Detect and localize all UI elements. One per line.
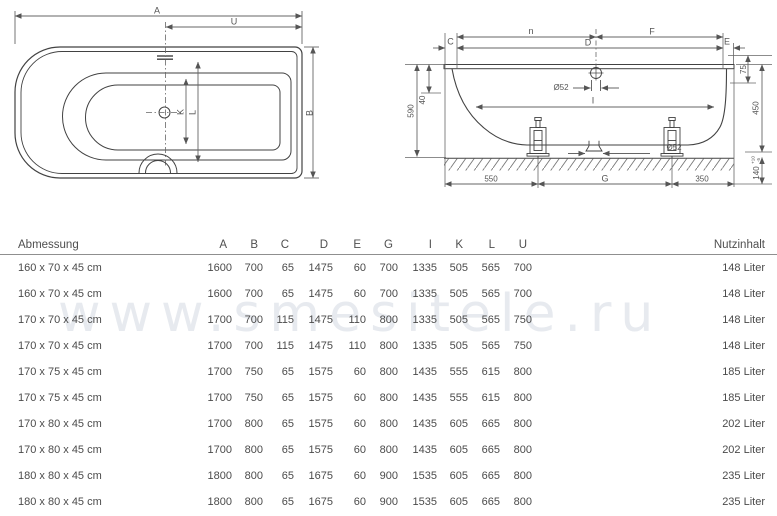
value-cell: 1335: [398, 314, 437, 326]
value-cell: 700: [232, 288, 263, 300]
drain-diameter-label: Ø52: [666, 143, 682, 152]
value-cell: 800: [232, 470, 263, 482]
tub-foot-right: [661, 118, 683, 159]
value-cell: 65: [263, 366, 294, 378]
overflow-detail: [589, 66, 604, 92]
value-cell: 800: [232, 496, 263, 508]
table-body: 160 x 70 x 45 cm160070065147560700133550…: [0, 255, 777, 515]
value-cell: 1700: [198, 366, 232, 378]
value-cell: 1575: [294, 392, 333, 404]
value-cell: 605: [437, 418, 468, 430]
dim-590-label: 590: [407, 104, 416, 118]
value-cell: 605: [437, 470, 468, 482]
value-cell: 60: [333, 496, 366, 508]
value-cell: 665: [468, 496, 500, 508]
value-cell: 750: [500, 314, 532, 326]
size-cell: 180 x 80 x 45 cm: [0, 470, 198, 482]
header-col-g: G: [366, 239, 398, 251]
value-cell: 60: [333, 366, 366, 378]
value-cell: 1700: [198, 444, 232, 456]
value-cell: 750: [500, 340, 532, 352]
value-cell: 115: [263, 314, 294, 326]
value-cell: 65: [263, 470, 294, 482]
value-cell: 665: [468, 444, 500, 456]
value-cell: 700: [366, 262, 398, 274]
dim-label-k: K: [176, 109, 186, 115]
volume-cell: 148 Liter: [635, 262, 777, 274]
value-cell: 1335: [398, 340, 437, 352]
value-cell: 115: [263, 340, 294, 352]
value-cell: 800: [366, 392, 398, 404]
value-cell: 1575: [294, 444, 333, 456]
value-cell: 800: [366, 418, 398, 430]
value-cell: 700: [232, 314, 263, 326]
value-cell: 900: [366, 496, 398, 508]
value-cell: 800: [500, 418, 532, 430]
dim-label-i: I: [592, 96, 595, 106]
value-cell: 505: [437, 288, 468, 300]
value-cell: 65: [263, 444, 294, 456]
value-cell: 60: [333, 444, 366, 456]
centerlines: [146, 22, 184, 168]
value-cell: 65: [263, 262, 294, 274]
volume-cell: 202 Liter: [635, 418, 777, 430]
size-cell: 170 x 80 x 45 cm: [0, 418, 198, 430]
tub-foot-left: [527, 118, 549, 159]
volume-cell: 185 Liter: [635, 366, 777, 378]
value-cell: 60: [333, 392, 366, 404]
value-cell: 60: [333, 288, 366, 300]
value-cell: 900: [366, 470, 398, 482]
side-view-drawing: n F C D E I Ø52 Ø52 550 G 350 590 40 75 …: [405, 26, 772, 188]
value-cell: 1435: [398, 418, 437, 430]
value-cell: 665: [468, 418, 500, 430]
dim-label-n: n: [528, 26, 533, 36]
table-row: 180 x 80 x 45 cm180080065167560900153560…: [0, 489, 777, 515]
value-cell: 565: [468, 288, 500, 300]
bathtub-spec-sheet: www.smesitele.ru: [0, 0, 777, 516]
value-cell: 1675: [294, 496, 333, 508]
overflow-diameter-label: Ø52: [553, 83, 569, 92]
value-cell: 1800: [198, 470, 232, 482]
value-cell: 800: [500, 366, 532, 378]
value-cell: 665: [468, 470, 500, 482]
volume-cell: 148 Liter: [635, 340, 777, 352]
table-row: 170 x 70 x 45 cm170070011514751108001335…: [0, 307, 777, 333]
value-cell: 1535: [398, 470, 437, 482]
value-cell: 1700: [198, 418, 232, 430]
drain-detail: [586, 141, 602, 151]
value-cell: 1435: [398, 366, 437, 378]
size-cell: 170 x 70 x 45 cm: [0, 314, 198, 326]
ground-hatch: [444, 159, 734, 171]
value-cell: 565: [468, 314, 500, 326]
value-cell: 1535: [398, 496, 437, 508]
volume-cell: 148 Liter: [635, 314, 777, 326]
value-cell: 65: [263, 418, 294, 430]
size-cell: 160 x 70 x 45 cm: [0, 288, 198, 300]
value-cell: 800: [366, 366, 398, 378]
plan-dimensions: [15, 11, 319, 178]
table-row: 170 x 75 x 45 cm170075065157560800143555…: [0, 385, 777, 411]
header-col-a: A: [198, 239, 232, 251]
table-row: 160 x 70 x 45 cm160070065147560700133550…: [0, 281, 777, 307]
value-cell: 1600: [198, 288, 232, 300]
dim-label-d: D: [585, 38, 592, 48]
dim-450-label: 450: [752, 101, 761, 115]
rim-profile: [444, 65, 734, 69]
value-cell: 65: [263, 392, 294, 404]
technical-drawing: A U B K L: [0, 0, 777, 228]
size-cell: 170 x 70 x 45 cm: [0, 340, 198, 352]
size-cell: 160 x 70 x 45 cm: [0, 262, 198, 274]
value-cell: 615: [468, 366, 500, 378]
value-cell: 800: [500, 470, 532, 482]
volume-cell: 185 Liter: [635, 392, 777, 404]
volume-cell: 235 Liter: [635, 496, 777, 508]
value-cell: 1475: [294, 340, 333, 352]
table-row: 170 x 75 x 45 cm170075065157560800143555…: [0, 359, 777, 385]
value-cell: 505: [437, 340, 468, 352]
value-cell: 110: [333, 314, 366, 326]
header-volume: Nutzinhalt: [635, 239, 777, 251]
value-cell: 1435: [398, 392, 437, 404]
value-cell: 800: [500, 444, 532, 456]
table-header-row: Abmessung A B C D E G I K L U Nutzinhalt: [0, 229, 777, 255]
value-cell: 110: [333, 340, 366, 352]
value-cell: 1435: [398, 444, 437, 456]
value-cell: 800: [232, 418, 263, 430]
value-cell: 700: [366, 288, 398, 300]
value-cell: 605: [437, 496, 468, 508]
table-row: 170 x 80 x 45 cm170080065157560800143560…: [0, 437, 777, 463]
overflow-mark: [157, 56, 173, 59]
value-cell: 605: [437, 444, 468, 456]
table-row: 170 x 80 x 45 cm170080065157560800143560…: [0, 411, 777, 437]
value-cell: 800: [232, 444, 263, 456]
header-col-b: B: [232, 239, 263, 251]
value-cell: 555: [437, 392, 468, 404]
value-cell: 1700: [198, 392, 232, 404]
value-cell: 1675: [294, 470, 333, 482]
value-cell: 505: [437, 262, 468, 274]
dim-label-b: B: [305, 110, 315, 116]
value-cell: 800: [500, 496, 532, 508]
dim-g-label: G: [601, 174, 608, 184]
dim-label-e: E: [724, 37, 730, 47]
dimension-table: Abmessung A B C D E G I K L U Nutzinhalt…: [0, 229, 777, 515]
table-row: 160 x 70 x 45 cm160070065147560700133550…: [0, 255, 777, 281]
value-cell: 1700: [198, 314, 232, 326]
volume-cell: 235 Liter: [635, 470, 777, 482]
value-cell: 700: [232, 262, 263, 274]
value-cell: 800: [366, 444, 398, 456]
value-cell: 1575: [294, 366, 333, 378]
value-cell: 1335: [398, 262, 437, 274]
value-cell: 60: [333, 470, 366, 482]
value-cell: 1575: [294, 418, 333, 430]
value-cell: 565: [468, 340, 500, 352]
size-cell: 170 x 75 x 45 cm: [0, 392, 198, 404]
volume-cell: 148 Liter: [635, 288, 777, 300]
table-row: 170 x 70 x 45 cm170070011514751108001335…: [0, 333, 777, 359]
waste-arcs: [139, 154, 177, 173]
value-cell: 1600: [198, 262, 232, 274]
value-cell: 750: [232, 392, 263, 404]
value-cell: 800: [366, 314, 398, 326]
top-view-drawing: A U B K L: [15, 6, 319, 179]
value-cell: 615: [468, 392, 500, 404]
value-cell: 1800: [198, 496, 232, 508]
tolerance-minus-label: -5: [756, 158, 761, 163]
value-cell: 565: [468, 262, 500, 274]
header-col-c: C: [263, 239, 294, 251]
value-cell: 700: [500, 262, 532, 274]
header-col-e: E: [333, 239, 366, 251]
value-cell: 505: [437, 314, 468, 326]
value-cell: 555: [437, 366, 468, 378]
header-col-i: I: [398, 239, 437, 251]
table-row: 180 x 80 x 45 cm180080065167560900153560…: [0, 463, 777, 489]
value-cell: 60: [333, 418, 366, 430]
value-cell: 1700: [198, 340, 232, 352]
header-col-u: U: [500, 239, 532, 251]
size-cell: 170 x 75 x 45 cm: [0, 366, 198, 378]
dim-350-label: 350: [695, 175, 709, 184]
value-cell: 1475: [294, 262, 333, 274]
value-cell: 800: [366, 340, 398, 352]
value-cell: 750: [232, 366, 263, 378]
dim-label-f: F: [649, 27, 655, 37]
header-col-d: D: [294, 239, 333, 251]
dim-75-label: 75: [739, 65, 748, 74]
value-cell: 1475: [294, 314, 333, 326]
header-col-k: K: [437, 239, 468, 251]
dim-label-u: U: [231, 17, 238, 27]
dim-40-label: 40: [418, 95, 427, 104]
size-cell: 170 x 80 x 45 cm: [0, 444, 198, 456]
dim-140-label: 140: [752, 166, 761, 180]
value-cell: 700: [500, 288, 532, 300]
dim-550-label: 550: [484, 175, 498, 184]
value-cell: 700: [232, 340, 263, 352]
header-dimension: Abmessung: [0, 239, 198, 251]
tolerance-plus-label: +10: [751, 156, 756, 164]
value-cell: 800: [500, 392, 532, 404]
dim-label-l: L: [188, 110, 198, 115]
size-cell: 180 x 80 x 45 cm: [0, 496, 198, 508]
volume-cell: 202 Liter: [635, 444, 777, 456]
value-cell: 65: [263, 288, 294, 300]
dim-label-c: C: [447, 37, 454, 47]
value-cell: 60: [333, 262, 366, 274]
dim-label-a: A: [154, 6, 160, 16]
value-cell: 65: [263, 496, 294, 508]
header-col-l: L: [468, 239, 500, 251]
value-cell: 1335: [398, 288, 437, 300]
value-cell: 1475: [294, 288, 333, 300]
